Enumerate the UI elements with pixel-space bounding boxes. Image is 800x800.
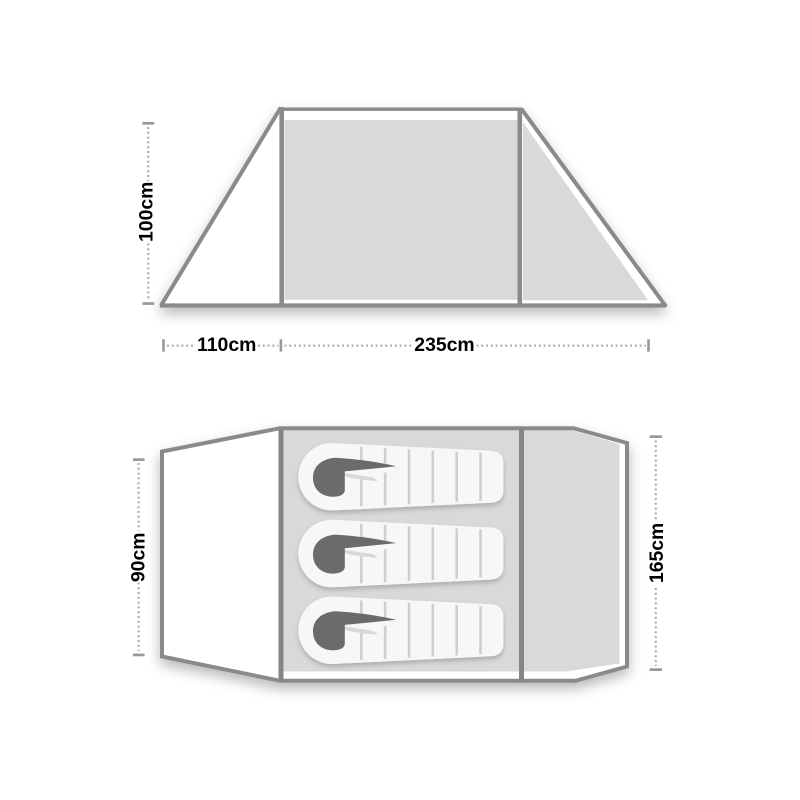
svg-text:100cm: 100cm <box>136 182 158 242</box>
svg-text:165cm: 165cm <box>646 523 668 583</box>
svg-text:235cm: 235cm <box>414 334 474 356</box>
svg-text:110cm: 110cm <box>197 334 256 356</box>
svg-text:90cm: 90cm <box>127 532 149 582</box>
